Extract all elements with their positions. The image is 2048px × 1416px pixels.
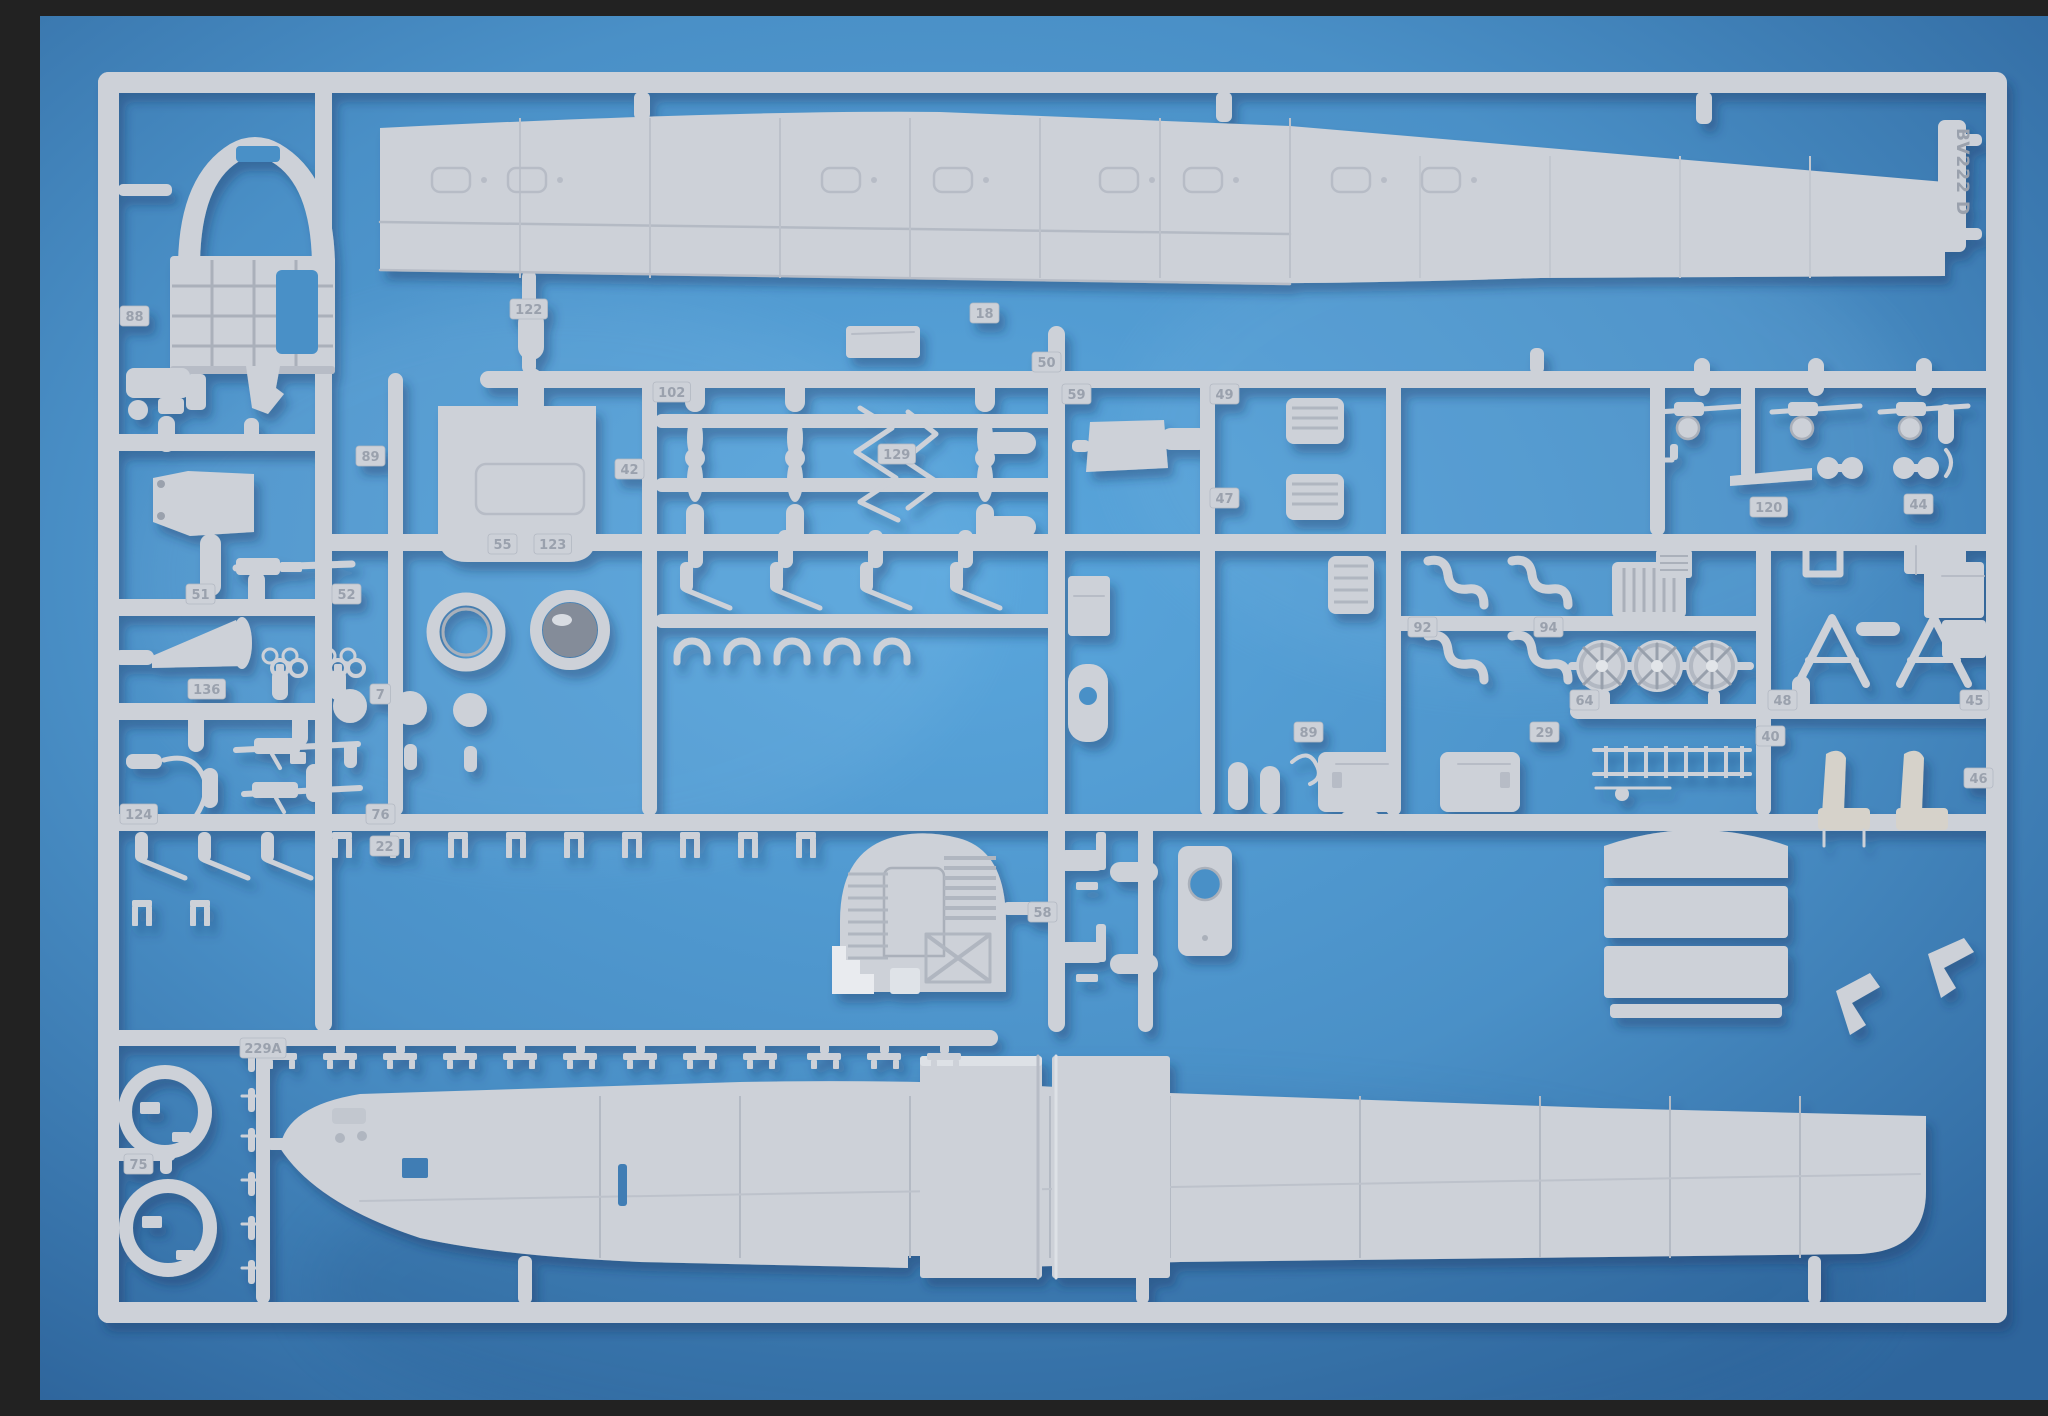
sprue-rail-v bbox=[256, 1030, 270, 1304]
part-number-tag-229A: 229A bbox=[240, 1038, 286, 1058]
part-number-tag-45: 45 bbox=[1960, 690, 1989, 710]
svg-text:89: 89 bbox=[1299, 726, 1317, 741]
part-number-tag-64: 64 bbox=[1570, 690, 1599, 710]
block-pair bbox=[1904, 546, 1966, 574]
svg-text:58: 58 bbox=[1033, 906, 1051, 921]
part-number-tag-92: 92 bbox=[1408, 617, 1437, 637]
part-number-tag-75: 75 bbox=[124, 1154, 153, 1174]
part-number-tag-123: 123 bbox=[534, 534, 572, 554]
part-number-tag-49: 49 bbox=[1210, 384, 1239, 404]
svg-text:229A: 229A bbox=[244, 1042, 281, 1057]
svg-text:64: 64 bbox=[1575, 694, 1593, 709]
svg-text:88: 88 bbox=[125, 310, 143, 325]
svg-text:122: 122 bbox=[515, 303, 542, 318]
sprue-rail-v bbox=[1756, 534, 1771, 816]
part-number-tag-42: 42 bbox=[615, 459, 644, 479]
sprue-photo: BV222 D888942102122551231295059494758929… bbox=[40, 16, 2048, 1400]
part-number-tag-29: 29 bbox=[1530, 722, 1559, 742]
svg-text:102: 102 bbox=[658, 386, 685, 401]
svg-text:92: 92 bbox=[1413, 621, 1431, 636]
part-number-tag-52: 52 bbox=[332, 584, 361, 604]
part-number-tag-40: 40 bbox=[1756, 726, 1785, 746]
porthole-door bbox=[1178, 846, 1232, 956]
part-number-tag-120: 120 bbox=[1750, 497, 1788, 517]
part-number-tag-50: 50 bbox=[1032, 352, 1061, 372]
part-number-tag-18: 18 bbox=[970, 303, 999, 323]
small-cylinder bbox=[248, 572, 265, 614]
bow-turret-grid-panel bbox=[170, 256, 335, 374]
sprue-rail-v bbox=[98, 72, 119, 1323]
part-number-tag-48: 48 bbox=[1768, 690, 1797, 710]
svg-text:45: 45 bbox=[1965, 694, 1983, 709]
svg-text:48: 48 bbox=[1773, 694, 1791, 709]
firewall-plate bbox=[153, 471, 254, 536]
svg-text:89: 89 bbox=[361, 450, 379, 465]
svg-text:76: 76 bbox=[371, 808, 389, 823]
sprue-rail-h bbox=[655, 414, 1055, 428]
svg-text:BV222 D: BV222 D bbox=[1952, 128, 1972, 216]
sprue-rail-h bbox=[106, 599, 328, 616]
svg-text:123: 123 bbox=[539, 538, 566, 553]
part-number-tag-89: 89 bbox=[1294, 722, 1323, 742]
svg-text:44: 44 bbox=[1909, 498, 1927, 513]
grill-block bbox=[1656, 550, 1692, 578]
sprue-photo-canvas: BV222 D888942102122551231295059494758929… bbox=[40, 16, 2048, 1400]
part-number-tag-22: 22 bbox=[370, 836, 399, 856]
svg-text:29: 29 bbox=[1535, 726, 1553, 741]
svg-text:51: 51 bbox=[191, 588, 209, 603]
part-number-tag-136: 136 bbox=[188, 679, 226, 699]
svg-text:55: 55 bbox=[493, 538, 511, 553]
svg-text:136: 136 bbox=[193, 683, 220, 698]
sprue-rail-v bbox=[1138, 814, 1153, 1032]
part-number-tag-47: 47 bbox=[1210, 488, 1239, 508]
part-number-tag-102: 102 bbox=[653, 382, 691, 402]
part-number-tag-76: 76 bbox=[366, 804, 395, 824]
sprue-rail-v bbox=[1386, 373, 1401, 816]
sprue-rail-h bbox=[1392, 616, 1766, 631]
part-number-tag-55: 55 bbox=[488, 534, 517, 554]
part-number-tag-59: 59 bbox=[1062, 384, 1091, 404]
part-number-tag-44: 44 bbox=[1904, 494, 1933, 514]
svg-text:75: 75 bbox=[129, 1158, 147, 1173]
part-number-tag-124: 124 bbox=[120, 804, 158, 824]
svg-text:40: 40 bbox=[1761, 730, 1779, 745]
svg-text:94: 94 bbox=[1539, 621, 1557, 636]
sprue-rail-h bbox=[655, 478, 1055, 492]
part-number-tag-122: 122 bbox=[510, 299, 548, 319]
part-number-tag-129: 129 bbox=[878, 444, 916, 464]
part-number-tag-46: 46 bbox=[1964, 768, 1993, 788]
svg-text:42: 42 bbox=[620, 463, 638, 478]
radiator-stack bbox=[1604, 830, 1788, 1018]
part-number-tag-51: 51 bbox=[186, 584, 215, 604]
sprue-rail-h bbox=[98, 72, 2006, 93]
svg-text:47: 47 bbox=[1215, 492, 1233, 507]
sprue-rail-h bbox=[655, 614, 1055, 628]
sprue-rail-h bbox=[106, 434, 328, 451]
sprue-rail-v bbox=[642, 373, 657, 816]
svg-text:124: 124 bbox=[125, 808, 152, 823]
hatch-plate bbox=[846, 326, 920, 358]
part-number-tag-94: 94 bbox=[1534, 617, 1563, 637]
sprue-rail-h bbox=[98, 1302, 2006, 1323]
sprue-rail-v bbox=[1048, 326, 1065, 1032]
svg-text:49: 49 bbox=[1215, 388, 1233, 403]
svg-text:18: 18 bbox=[975, 307, 993, 322]
svg-text:120: 120 bbox=[1755, 501, 1782, 516]
svg-text:129: 129 bbox=[883, 448, 910, 463]
cowl-ring-2 bbox=[536, 596, 604, 664]
svg-text:50: 50 bbox=[1037, 356, 1055, 371]
spar-block-1 bbox=[920, 1056, 1042, 1278]
svg-text:52: 52 bbox=[337, 588, 355, 603]
part-number-tag-7: 7 bbox=[370, 684, 391, 704]
part-number-tag-89: 89 bbox=[356, 446, 385, 466]
svg-text:7: 7 bbox=[376, 688, 385, 703]
sprue-rail-v bbox=[388, 373, 403, 816]
part-number-tag-58: 58 bbox=[1028, 902, 1057, 922]
svg-text:46: 46 bbox=[1969, 772, 1987, 787]
spoked-wheels bbox=[1576, 640, 1738, 692]
part-number-tag-88: 88 bbox=[120, 306, 149, 326]
svg-text:22: 22 bbox=[375, 840, 393, 855]
spar-block-2 bbox=[1052, 1056, 1170, 1278]
svg-text:59: 59 bbox=[1067, 388, 1085, 403]
